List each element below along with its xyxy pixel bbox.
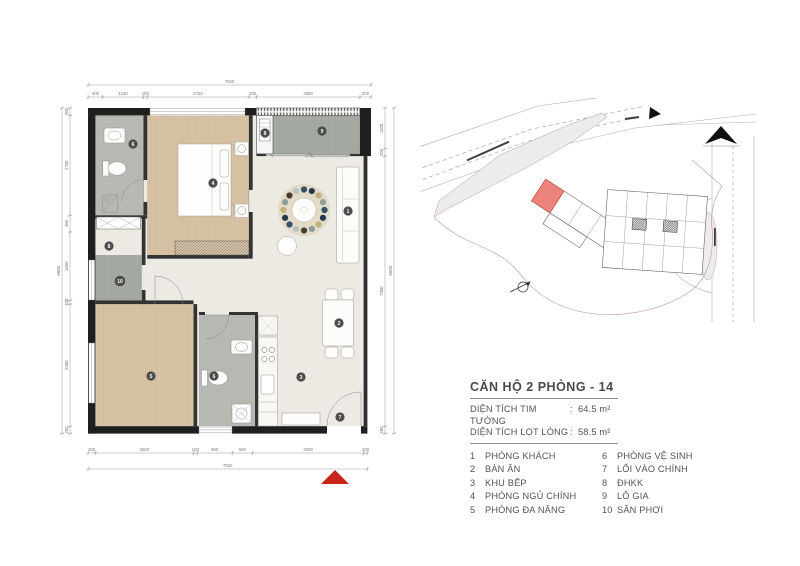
dimension-label: 8800: [56, 265, 61, 275]
room-legend: 1PHÒNG KHÁCH 2BÀN ĂN 3KHU BẾP 4PHÒNG NGỦ…: [470, 450, 702, 518]
rug-dot: [309, 226, 315, 232]
rug-dot: [320, 199, 326, 205]
site-plan-svg: [420, 98, 760, 322]
dimension-label: 200: [88, 447, 96, 452]
dimension-label: 200: [379, 148, 384, 156]
rug-dot: [282, 215, 288, 221]
dimension-label: 200: [64, 426, 69, 434]
rug-dot: [280, 207, 286, 213]
dimension-label: 100: [64, 298, 69, 306]
elevator-core: [663, 221, 678, 233]
rug-dot: [315, 221, 321, 227]
legend-column-2: 6PHÒNG VỆ SINH 7LỐI VÀO CHÍNH 8ĐHKK 9LÔ …: [602, 450, 702, 518]
legend-item: 7LỐI VÀO CHÍNH: [602, 463, 702, 477]
dimension-label: 1100: [119, 91, 129, 96]
dimension-label: 550: [239, 447, 247, 452]
dimension-label: 200: [249, 91, 257, 96]
round-table: [292, 198, 316, 222]
armchair: [278, 237, 297, 256]
floor-plan-svg: 4001100100275020028003007650200265010095…: [55, 60, 415, 490]
room-marker-number: 4: [212, 181, 215, 187]
dimension-label: 3000: [303, 447, 313, 452]
legend-item: 6PHÒNG VỆ SINH: [602, 450, 702, 464]
room-marker-number: 8: [108, 244, 111, 250]
dimension-label: 200: [379, 426, 384, 434]
dimension-label: 1850: [64, 261, 69, 271]
room-marker-number: 3: [300, 375, 303, 381]
dimension-label: 100: [142, 91, 150, 96]
dimension-label: 200: [64, 108, 69, 116]
room-marker-number: 10: [117, 279, 123, 285]
wardrobe: [175, 241, 249, 255]
rug-dot: [320, 215, 326, 221]
dimension-label: 1100: [379, 123, 384, 133]
legend-item: 1PHÒNG KHÁCH: [470, 450, 602, 464]
page: 4001100100275020028003007650200265010095…: [0, 0, 800, 566]
rug-dot: [293, 188, 299, 194]
unit-title: CĂN HỘ 2 PHÒNG - 14: [470, 380, 702, 394]
dimension-label: 7550: [223, 463, 233, 468]
legend-item: 5PHÒNG ĐA NĂNG: [470, 504, 602, 518]
room-marker-number: 6: [132, 142, 135, 148]
dimension-label: 400: [92, 91, 100, 96]
legend-item: 9LÔ GIA: [602, 490, 702, 504]
area-row: DIỆN TÍCH LỌT LÒNG : 58.5 m²: [470, 427, 702, 439]
rug-dot: [286, 192, 292, 198]
rug-dot: [321, 207, 327, 213]
balcony-floor: [273, 115, 360, 156]
dimension-label: 7300: [379, 286, 384, 296]
dimension-label: 7650: [225, 79, 235, 84]
rug-dot: [301, 227, 307, 233]
dimension-label: 300: [362, 91, 370, 96]
dimension-label: 8800: [388, 265, 393, 275]
room-marker-number: 7: [339, 415, 342, 421]
area-row: DIỆN TÍCH TIM TƯỜNG : 64.5 m²: [470, 404, 702, 427]
divider: [470, 443, 618, 444]
dimension-label: 450: [64, 219, 69, 227]
room-marker-number: 1: [347, 209, 350, 215]
room-marker-number: 6: [213, 374, 216, 380]
elevator-core: [632, 218, 647, 230]
dimension-label: 950: [211, 447, 219, 452]
dimension-label: 2800: [303, 91, 313, 96]
room-marker-number: 9: [321, 129, 324, 135]
rug-dot: [286, 221, 292, 227]
rug-dot: [315, 192, 321, 198]
balcony-railing: [256, 108, 360, 115]
rug-dot: [309, 188, 315, 194]
rug-dot: [301, 186, 307, 192]
entrance-arrow: [321, 470, 349, 484]
dimension-label: 100: [362, 447, 370, 452]
legend-item: 10SÂN PHƠI: [602, 504, 702, 518]
legend-item: 4PHÒNG NGỦ CHÍNH: [470, 490, 602, 504]
room-marker-number: 2: [338, 321, 341, 327]
dimension-label: 2750: [193, 91, 203, 96]
divider: [470, 398, 618, 399]
legend-item: 3KHU BẾP: [470, 477, 602, 491]
room-marker-number: 8: [264, 131, 267, 137]
legend-item: 2BÀN ĂN: [470, 463, 602, 477]
utility-cabinet: [97, 217, 141, 229]
room-marker-number: 5: [150, 374, 153, 380]
legend-item: 8ĐHKK: [602, 477, 702, 491]
dimension-label: 2700: [64, 160, 69, 170]
rug-dot: [282, 199, 288, 205]
dimension-label: 2650: [140, 447, 150, 452]
rug-dot: [293, 226, 299, 232]
dimension-label: 3300: [64, 360, 69, 370]
dimension-label: 100: [192, 447, 200, 452]
title-block: CĂN HỘ 2 PHÒNG - 14 DIỆN TÍCH TIM TƯỜNG …: [470, 380, 702, 517]
multipurpose-room-floor: [95, 304, 193, 426]
legend-column-1: 1PHÒNG KHÁCH 2BÀN ĂN 3KHU BẾP 4PHÒNG NGỦ…: [470, 450, 602, 518]
